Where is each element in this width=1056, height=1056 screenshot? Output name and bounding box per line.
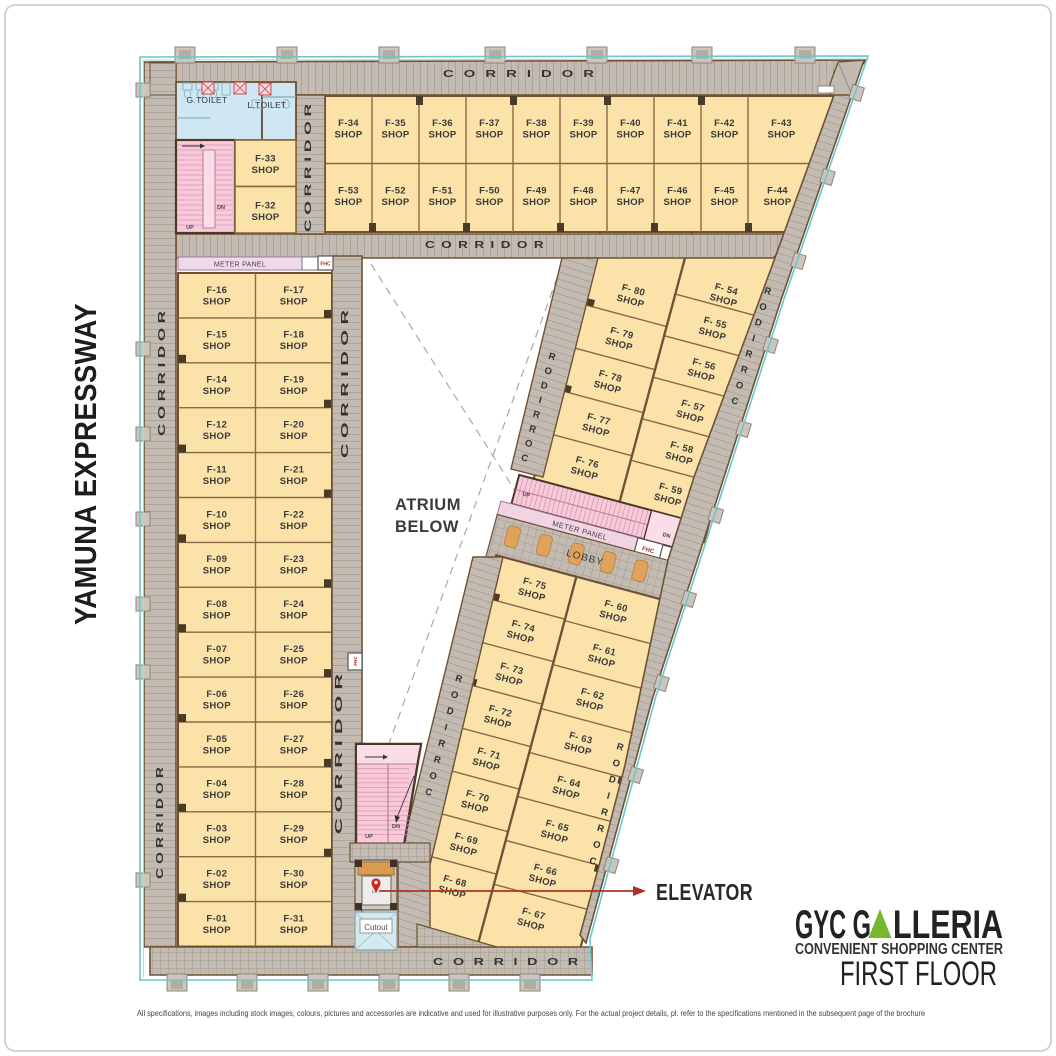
svg-text:SHOP: SHOP	[334, 129, 362, 140]
svg-text:F-29: F-29	[283, 824, 304, 835]
svg-text:SHOP: SHOP	[428, 197, 456, 208]
svg-text:SHOP: SHOP	[203, 386, 231, 397]
svg-text:SHOP: SHOP	[280, 611, 308, 622]
svg-text:SHOP: SHOP	[280, 656, 308, 667]
svg-text:F-06: F-06	[206, 689, 227, 700]
svg-text:F-19: F-19	[283, 375, 304, 386]
svg-text:SHOP: SHOP	[428, 129, 456, 140]
svg-text:SHOP: SHOP	[616, 129, 644, 140]
svg-text:SHOP: SHOP	[767, 129, 795, 140]
svg-text:F-15: F-15	[206, 330, 227, 341]
svg-text:F-40: F-40	[620, 118, 641, 129]
svg-text:DN: DN	[392, 824, 400, 830]
svg-text:METER PANEL: METER PANEL	[214, 262, 266, 269]
svg-text:SHOP: SHOP	[280, 431, 308, 442]
svg-text:F-28: F-28	[283, 779, 304, 790]
svg-text:F-53: F-53	[338, 185, 359, 196]
svg-text:SHOP: SHOP	[475, 129, 503, 140]
svg-text:F-18: F-18	[283, 330, 304, 341]
svg-text:F-07: F-07	[206, 644, 227, 655]
svg-text:SHOP: SHOP	[569, 197, 597, 208]
svg-text:FHC: FHC	[353, 656, 358, 666]
svg-text:F-42: F-42	[714, 118, 735, 129]
svg-text:SHOP: SHOP	[280, 521, 308, 532]
svg-text:C O R R I D O R: C O R R I D O R	[340, 308, 351, 458]
svg-text:F-48: F-48	[573, 185, 594, 196]
svg-text:F-37: F-37	[479, 118, 500, 129]
svg-text:SHOP: SHOP	[203, 476, 231, 487]
svg-text:F-14: F-14	[206, 375, 227, 386]
svg-text:F-34: F-34	[338, 118, 359, 129]
svg-text:SHOP: SHOP	[475, 197, 503, 208]
svg-text:SHOP: SHOP	[203, 431, 231, 442]
svg-text:F-16: F-16	[206, 285, 227, 296]
svg-text:SHOP: SHOP	[280, 925, 308, 936]
svg-text:SHOP: SHOP	[280, 386, 308, 397]
svg-text:F-20: F-20	[283, 420, 304, 431]
svg-text:F-11: F-11	[207, 464, 228, 475]
svg-text:F-23: F-23	[283, 554, 304, 565]
svg-text:F-04: F-04	[206, 779, 227, 790]
svg-text:SHOP: SHOP	[280, 566, 308, 577]
svg-text:SHOP: SHOP	[203, 296, 231, 307]
svg-text:SHOP: SHOP	[569, 129, 597, 140]
svg-text:SHOP: SHOP	[280, 790, 308, 801]
svg-text:SHOP: SHOP	[203, 656, 231, 667]
svg-text:F-43: F-43	[771, 118, 792, 129]
svg-text:F-30: F-30	[283, 869, 304, 880]
svg-text:SHOP: SHOP	[203, 790, 231, 801]
svg-text:F-33: F-33	[255, 153, 276, 164]
svg-text:F-50: F-50	[479, 185, 500, 196]
svg-text:ELEVATOR: ELEVATOR	[656, 879, 753, 905]
svg-text:SHOP: SHOP	[203, 521, 231, 532]
svg-text:SHOP: SHOP	[203, 611, 231, 622]
svg-text:SHOP: SHOP	[280, 700, 308, 711]
svg-text:SHOP: SHOP	[710, 129, 738, 140]
svg-text:DN: DN	[217, 205, 225, 211]
svg-text:SHOP: SHOP	[522, 129, 550, 140]
svg-text:F-32: F-32	[255, 200, 276, 211]
svg-text:F-38: F-38	[526, 118, 547, 129]
svg-text:F-10: F-10	[206, 509, 227, 520]
svg-text:SHOP: SHOP	[203, 925, 231, 936]
svg-text:SHOP: SHOP	[663, 129, 691, 140]
svg-text:F-12: F-12	[206, 420, 227, 431]
svg-text:F-41: F-41	[667, 118, 688, 129]
svg-text:F-47: F-47	[620, 185, 641, 196]
svg-text:F-09: F-09	[206, 554, 227, 565]
svg-text:C O R R I D O R: C O R R I D O R	[155, 766, 166, 879]
svg-text:C O R R I D O R: C O R R I D O R	[334, 672, 345, 834]
svg-text:F-51: F-51	[432, 185, 453, 196]
svg-text:SHOP: SHOP	[280, 745, 308, 756]
svg-text:SHOP: SHOP	[381, 129, 409, 140]
svg-text:F-31: F-31	[283, 913, 304, 924]
svg-text:SHOP: SHOP	[710, 197, 738, 208]
svg-text:BELOW: BELOW	[395, 518, 459, 536]
svg-text:SHOP: SHOP	[280, 476, 308, 487]
svg-text:SHOP: SHOP	[280, 880, 308, 891]
svg-text:C O R R I D O R: C O R R I D O R	[433, 957, 581, 968]
svg-text:SHOP: SHOP	[522, 197, 550, 208]
svg-text:SHOP: SHOP	[763, 197, 791, 208]
svg-text:Cutout: Cutout	[364, 923, 388, 932]
svg-text:SHOP: SHOP	[203, 835, 231, 846]
svg-text:SHOP: SHOP	[616, 197, 644, 208]
svg-text:C O R R I D O R: C O R R I D O R	[443, 69, 597, 80]
svg-text:C O R R I D O R: C O R R I D O R	[157, 310, 168, 436]
svg-text:SHOP: SHOP	[203, 700, 231, 711]
svg-text:F-35: F-35	[385, 118, 406, 129]
svg-text:F-24: F-24	[283, 599, 304, 610]
svg-text:FIRST FLOOR: FIRST FLOOR	[840, 955, 997, 993]
svg-text:UP: UP	[365, 834, 373, 840]
svg-text:F-22: F-22	[283, 509, 304, 520]
svg-text:SHOP: SHOP	[280, 341, 308, 352]
svg-text:F-02: F-02	[206, 869, 227, 880]
svg-text:FHC: FHC	[320, 262, 331, 268]
svg-text:SHOP: SHOP	[203, 745, 231, 756]
svg-text:G.TOILET: G.TOILET	[187, 95, 228, 105]
svg-text:UP: UP	[186, 225, 194, 231]
svg-text:C O R R I D O R: C O R R I D O R	[303, 104, 314, 232]
svg-text:F-17: F-17	[283, 285, 304, 296]
svg-text:All specifications, images inc: All specifications, images including sto…	[137, 1009, 925, 1018]
svg-text:F-36: F-36	[432, 118, 453, 129]
svg-text:SHOP: SHOP	[334, 197, 362, 208]
svg-text:ATRIUM: ATRIUM	[395, 496, 461, 514]
svg-text:YAMUNA EXPRESSWAY: YAMUNA EXPRESSWAY	[68, 303, 103, 625]
svg-text:F-44: F-44	[767, 185, 788, 196]
svg-text:SHOP: SHOP	[251, 165, 279, 176]
svg-text:SHOP: SHOP	[280, 835, 308, 846]
svg-text:F-26: F-26	[283, 689, 304, 700]
svg-text:SHOP: SHOP	[203, 566, 231, 577]
svg-text:C O R R I D O R: C O R R I D O R	[425, 240, 545, 251]
svg-text:F-45: F-45	[714, 185, 735, 196]
svg-text:SHOP: SHOP	[381, 197, 409, 208]
svg-text:F-49: F-49	[526, 185, 547, 196]
svg-text:SHOP: SHOP	[203, 341, 231, 352]
svg-text:F-27: F-27	[283, 734, 304, 745]
svg-text:F-03: F-03	[206, 824, 227, 835]
svg-text:F-21: F-21	[283, 464, 304, 475]
svg-text:F-52: F-52	[385, 185, 406, 196]
svg-text:SHOP: SHOP	[251, 212, 279, 223]
svg-text:F-46: F-46	[667, 185, 688, 196]
svg-text:SHOP: SHOP	[203, 880, 231, 891]
svg-text:F-05: F-05	[206, 734, 227, 745]
svg-text:F-01: F-01	[206, 913, 227, 924]
svg-text:F-08: F-08	[206, 599, 227, 610]
svg-text:F-25: F-25	[283, 644, 304, 655]
svg-text:SHOP: SHOP	[663, 197, 691, 208]
svg-text:L.TOILET: L.TOILET	[247, 100, 286, 110]
svg-text:SHOP: SHOP	[280, 296, 308, 307]
svg-text:F-39: F-39	[573, 118, 594, 129]
